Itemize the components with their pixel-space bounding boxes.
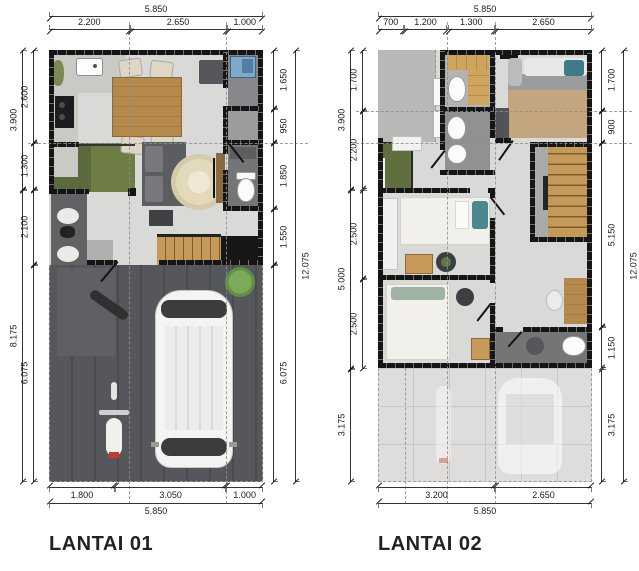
dim-p1-top-seg: 2.200 xyxy=(49,25,130,30)
section-line xyxy=(356,111,632,112)
motorbike-front-wheel xyxy=(111,382,117,400)
wall xyxy=(530,237,592,242)
motorbike-taillight xyxy=(109,452,119,458)
wall xyxy=(440,50,592,55)
bed1-accent-pillow xyxy=(564,60,584,76)
kitchen-sink xyxy=(76,58,103,76)
car-windshield xyxy=(161,438,227,456)
front-wall xyxy=(159,260,263,265)
balcony-terrace xyxy=(378,50,436,142)
sliding-window-line xyxy=(79,144,135,146)
section-line xyxy=(28,143,308,144)
dim-p1-top-seg: 1.000 xyxy=(227,25,264,30)
dim-p2-right-inner: 900 xyxy=(601,111,606,143)
toilet xyxy=(447,116,466,140)
dim-p1-bottom-seg: 3.050 xyxy=(115,487,227,492)
dim-p2-left-inner: 2.200 xyxy=(362,111,367,190)
plan1-title: LANTAI 01 xyxy=(49,533,153,556)
wall xyxy=(378,275,490,280)
wall xyxy=(530,143,535,242)
dim-p2-bottom-seg: 3.200 xyxy=(378,487,495,492)
wash-basin xyxy=(447,144,467,164)
washing-machine-lid xyxy=(242,59,253,73)
dim-p2-top-total: 5.850 xyxy=(378,12,592,17)
wardrobe xyxy=(447,55,489,70)
dim-p2-right-inner: 3.175 xyxy=(601,369,606,483)
floorplan-sheet: 5.850 2.200 2.650 1.000 3.900 8.175 2.60… xyxy=(0,0,639,571)
stove xyxy=(55,96,74,128)
toilet xyxy=(237,178,255,202)
dim-p2-left-inner: 1.700 xyxy=(362,50,367,111)
car-mirror xyxy=(229,442,237,447)
plant-leaves xyxy=(441,257,451,267)
wall xyxy=(49,50,54,193)
dim-p1-right-inner: 6.075 xyxy=(273,265,278,483)
wall xyxy=(258,50,263,265)
wash-basin-dark xyxy=(526,337,544,355)
stair-railing xyxy=(543,176,548,210)
floor-plan-lantai-02 xyxy=(378,50,592,482)
section-line xyxy=(495,22,496,504)
dining-table xyxy=(112,77,182,137)
dim-p1-bottom-seg: 1.800 xyxy=(49,487,115,492)
wall xyxy=(223,106,263,111)
dim-p2-top-seg: 2.650 xyxy=(495,25,592,30)
wall xyxy=(587,50,592,368)
wall xyxy=(49,189,89,194)
bed1-bolster xyxy=(508,58,522,86)
wall xyxy=(378,138,383,368)
dim-p2-top-seg: 1.300 xyxy=(448,25,496,30)
dim-p1-bottom-total: 5.850 xyxy=(49,503,263,508)
car-roof xyxy=(165,326,223,430)
dim-p1-right-inner: 950 xyxy=(273,109,278,143)
sofa-cushion xyxy=(145,176,163,202)
dim-p2-left-inner: 2.500 xyxy=(362,279,367,369)
dim-p2-top-seg: 1.200 xyxy=(404,25,448,30)
nightstand xyxy=(405,254,433,274)
dim-p2-right-inner: 1.700 xyxy=(601,50,606,111)
bed1-frame xyxy=(495,108,509,138)
wall xyxy=(523,327,592,332)
dim-p1-right-inner: 1.850 xyxy=(273,143,278,209)
section-line xyxy=(129,22,130,504)
dim-p1-top-seg: 2.650 xyxy=(130,25,227,30)
section-line xyxy=(356,143,632,144)
wardrobe xyxy=(468,70,489,105)
wall xyxy=(378,363,592,368)
motorbike-handlebar xyxy=(99,410,129,415)
dim-p2-right-outer: 12.075 xyxy=(623,50,628,482)
dim-p2-bottom-total: 5.850 xyxy=(378,503,592,508)
ghost-car-roof xyxy=(506,394,554,444)
wall xyxy=(440,50,445,150)
nightstand xyxy=(471,338,490,360)
sofa-cushion xyxy=(145,146,163,172)
wall xyxy=(49,50,263,55)
coffee-table xyxy=(149,210,173,226)
dim-p1-right-inner: 1.650 xyxy=(273,50,278,109)
wall xyxy=(495,327,503,332)
tv xyxy=(213,158,215,198)
section-line xyxy=(226,22,227,504)
dim-p1-left-inner: 2.600 xyxy=(33,50,38,143)
dim-p2-bottom-seg: 2.650 xyxy=(495,487,592,492)
dim-p1-left-inner: 1.300 xyxy=(33,143,38,190)
toilet xyxy=(448,76,466,102)
dim-p2-right-inner: 5.150 xyxy=(601,143,606,327)
dim-p1-right-inner: 1.550 xyxy=(273,209,278,265)
dim-p1-right-outer: 12.075 xyxy=(295,50,300,482)
garden-grill xyxy=(60,226,75,238)
dining-chair xyxy=(118,57,143,78)
bed2-accent-pillow xyxy=(472,201,488,229)
desk-chair xyxy=(546,290,563,311)
ghost-motorbike-below xyxy=(436,386,451,464)
wall xyxy=(440,170,495,175)
plan2-title: LANTAI 02 xyxy=(378,533,482,556)
dim-p1-bottom-seg: 1.000 xyxy=(226,487,263,492)
wall xyxy=(378,188,470,193)
dim-p2-left-outer: 3.175 xyxy=(350,369,355,483)
stepping-stone xyxy=(57,208,79,224)
toilet xyxy=(562,336,586,356)
dim-p2-left-inner: 2.500 xyxy=(362,190,367,280)
sink-faucet xyxy=(93,64,97,68)
side-yard-pad xyxy=(57,268,115,356)
bed3-pillow xyxy=(391,287,445,300)
shrub xyxy=(225,267,255,297)
bed1-blanket xyxy=(508,88,587,138)
section-line xyxy=(447,22,448,504)
bed2-pillow xyxy=(455,201,469,229)
service-lobby-floor xyxy=(228,111,258,140)
section-line xyxy=(405,368,406,504)
car-rear-window xyxy=(161,300,227,318)
motorbike-body xyxy=(106,418,122,456)
desk xyxy=(564,278,587,324)
dim-p1-left-inner: 2.100 xyxy=(33,190,38,265)
dim-p2-left-outer: 5.000 xyxy=(350,190,355,369)
car-mirror xyxy=(151,442,159,447)
wall xyxy=(223,206,263,211)
bedroom2-wardrobe xyxy=(382,198,398,270)
dim-p2-top-seg: 700 xyxy=(378,25,404,30)
floor-plan-lantai-01 xyxy=(49,50,263,482)
stove-burner xyxy=(59,114,65,120)
stove-burner xyxy=(59,102,65,108)
stepping-stone xyxy=(57,246,79,262)
dim-p2-right-inner: 1.150 xyxy=(601,327,606,368)
plant-pot xyxy=(456,288,474,306)
dim-p1-left-inner: 6.075 xyxy=(33,265,38,483)
